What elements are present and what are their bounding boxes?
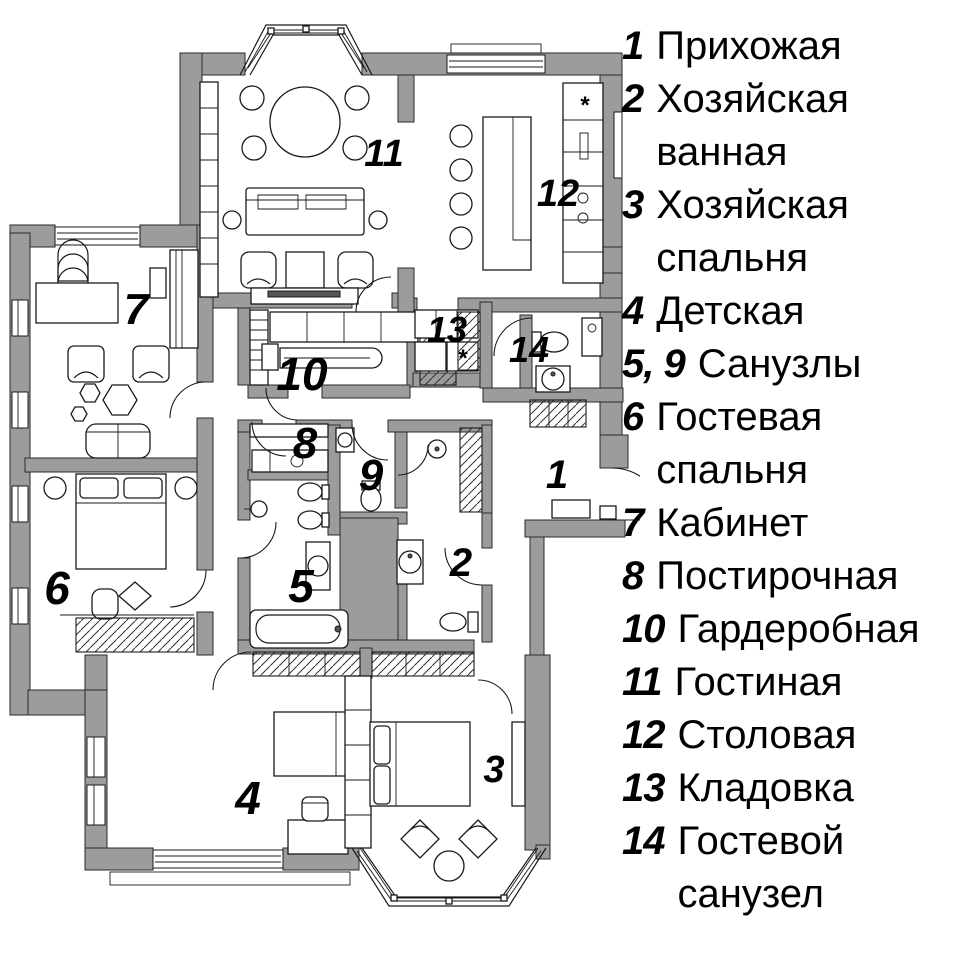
legend-item: 13 Кладовка: [622, 762, 960, 815]
wardrobe: [76, 618, 194, 652]
legend-item-label: Гостевой санузел: [678, 815, 960, 921]
legend-item-number: 4: [622, 285, 643, 338]
legend-item: 5, 9 Санузлы: [622, 338, 960, 391]
legend-item-number: 12: [622, 709, 665, 762]
legend-item: 6 Гостевая спальня: [622, 391, 960, 497]
cooktop-icon: *: [458, 345, 468, 372]
legend-item-number: 11: [622, 656, 662, 709]
room-3-master-bedroom: [370, 722, 525, 881]
dining-table: [483, 117, 531, 270]
legend-item-number: 2: [622, 73, 643, 126]
armchair: [68, 346, 104, 382]
armchair: [241, 252, 276, 288]
legend-item-label: Кабинет: [656, 497, 808, 550]
tv: [268, 291, 340, 297]
room-label-4: 4: [234, 772, 261, 824]
room-label-5: 5: [288, 560, 315, 612]
room-label-1: 1: [546, 453, 568, 497]
legend-item: 14 Гостевой санузел: [622, 815, 960, 921]
legend-item-number: 5, 9: [622, 338, 685, 391]
legend-item-number: 13: [622, 762, 665, 815]
sink: [338, 433, 352, 447]
legend-item: 11 Гостиная: [622, 656, 960, 709]
room-label-11: 11: [364, 133, 403, 175]
dresser: [512, 722, 525, 806]
legend-item-number: 7: [622, 497, 643, 550]
legend-item-label: Гостиная: [675, 656, 843, 709]
legend-item-number: 1: [622, 20, 643, 73]
room-2-master-bath: [397, 428, 482, 632]
armchair: [133, 346, 169, 382]
legend-item-label: Кладовка: [678, 762, 854, 815]
legend-item-label: Столовая: [678, 709, 857, 762]
room-7-office: [36, 240, 198, 458]
legend-item-label: Санузлы: [698, 338, 862, 391]
legend-item-number: 14: [622, 815, 665, 868]
room-label-14: 14: [509, 329, 549, 370]
room-label-7: 7: [124, 285, 151, 334]
chair: [302, 797, 328, 821]
wardrobe: [345, 676, 371, 848]
legend-item-number: 6: [622, 391, 643, 444]
legend-item-label: Детская: [656, 285, 804, 338]
legend-item: 12 Столовая: [622, 709, 960, 762]
closet: [530, 400, 586, 427]
sink: [251, 501, 267, 517]
legend-item-number: 3: [622, 179, 643, 232]
legend-item-label: Хозяйская спальня: [656, 179, 960, 285]
legend-item: 1 Прихожая: [622, 20, 960, 73]
room-label-13: 13: [427, 309, 467, 350]
bookshelf: [200, 82, 218, 297]
room-4-kids: [274, 676, 371, 854]
room-label-10: 10: [276, 348, 328, 400]
ottoman: [119, 582, 151, 610]
room-label-3: 3: [483, 749, 504, 791]
legend-item-number: 10: [622, 603, 665, 656]
floor-plan: 11 12 7 13 14 10 8 9 1 2 5 6 3 4 * *: [0, 0, 640, 960]
armchair: [338, 252, 373, 288]
legend-item-label: Гостевая спальня: [656, 391, 960, 497]
bench: [552, 500, 590, 518]
chair: [92, 589, 118, 619]
floor-plan-page: 11 12 7 13 14 10 8 9 1 2 5 6 3 4 * * 1 П…: [0, 0, 960, 960]
legend-item-label: Прихожая: [656, 20, 841, 73]
legend-item-label: Постирочная: [656, 550, 898, 603]
room-label-8: 8: [293, 419, 318, 468]
toilet: [298, 483, 322, 501]
legend-item: 3 Хозяйская спальня: [622, 179, 960, 285]
desk: [36, 283, 118, 323]
toilet: [440, 613, 466, 631]
bidet: [298, 511, 322, 529]
room-label-9: 9: [359, 451, 384, 500]
legend-item: 2 Хозяйская ванная: [622, 73, 960, 179]
room-label-2: 2: [449, 541, 472, 585]
legend-item: 10 Гардеробная: [622, 603, 960, 656]
side-table: [434, 851, 464, 881]
room-label-12: 12: [537, 173, 579, 215]
legend-item-label: Гардеробная: [678, 603, 920, 656]
legend-item: 7 Кабинет: [622, 497, 960, 550]
closet: [460, 428, 482, 512]
room-label-6: 6: [44, 562, 70, 614]
dining-table: [270, 87, 340, 157]
legend-item-number: 8: [622, 550, 643, 603]
sink: [542, 368, 564, 390]
room-11-living: [200, 82, 387, 304]
coffee-table: [286, 252, 324, 288]
cooktop-icon: *: [580, 92, 590, 119]
cabinet: [170, 250, 198, 348]
legend: 1 Прихожая 2 Хозяйская ванная 3 Хозяйска…: [622, 20, 960, 921]
legend-item: 4 Детская: [622, 285, 960, 338]
legend-item-label: Хозяйская ванная: [656, 73, 960, 179]
legend-item: 8 Постирочная: [622, 550, 960, 603]
desk: [288, 820, 348, 854]
